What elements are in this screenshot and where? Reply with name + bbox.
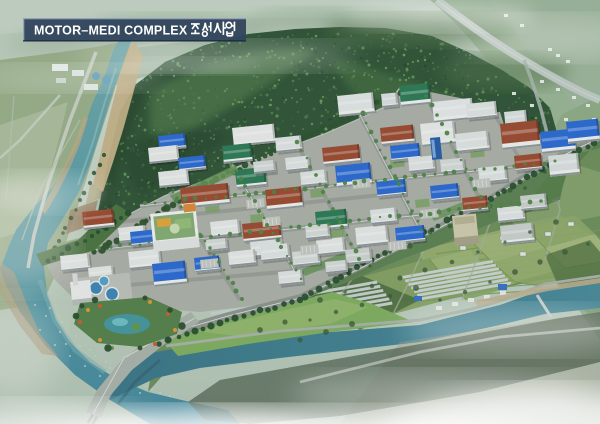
svg-text:MOTOR–MEDI COMPLEX: MOTOR–MEDI COMPLEX [34, 24, 188, 38]
